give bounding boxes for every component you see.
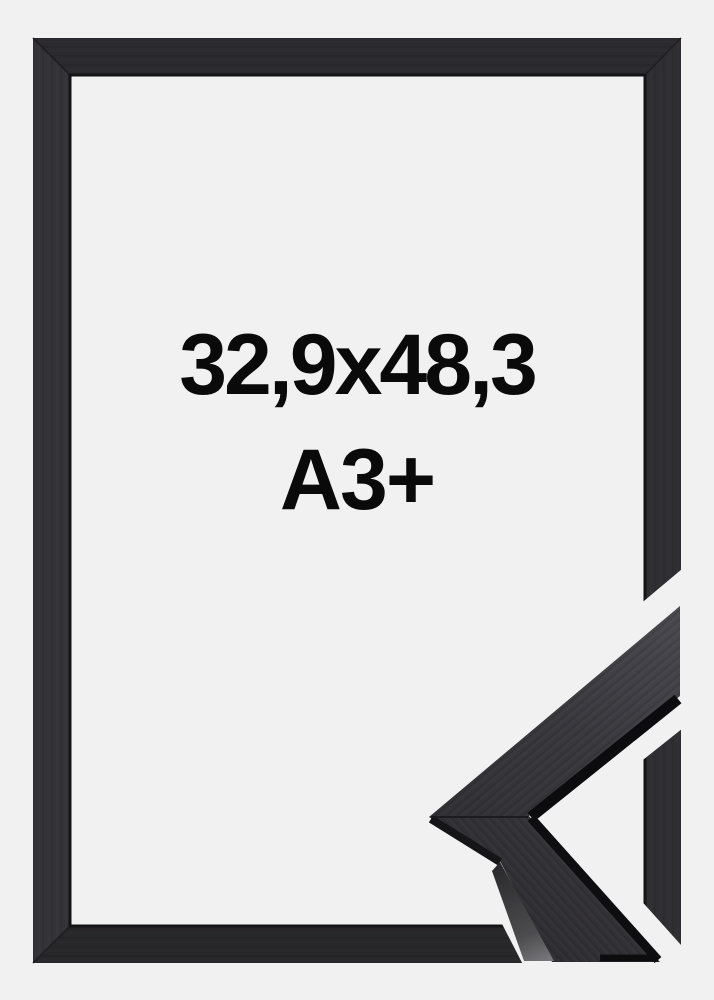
frame-size-label: 32,9x48,3 [179, 317, 535, 413]
framed-poster-product-photo: 32,9x48,3 A3+ [0, 0, 714, 1000]
frame-grain-left [33, 38, 70, 963]
frame-format-label: A3+ [280, 432, 434, 528]
frame-grain-right [645, 38, 681, 963]
product-image: 32,9x48,3 A3+ [0, 0, 714, 1000]
frame-grain-top [33, 38, 681, 75]
